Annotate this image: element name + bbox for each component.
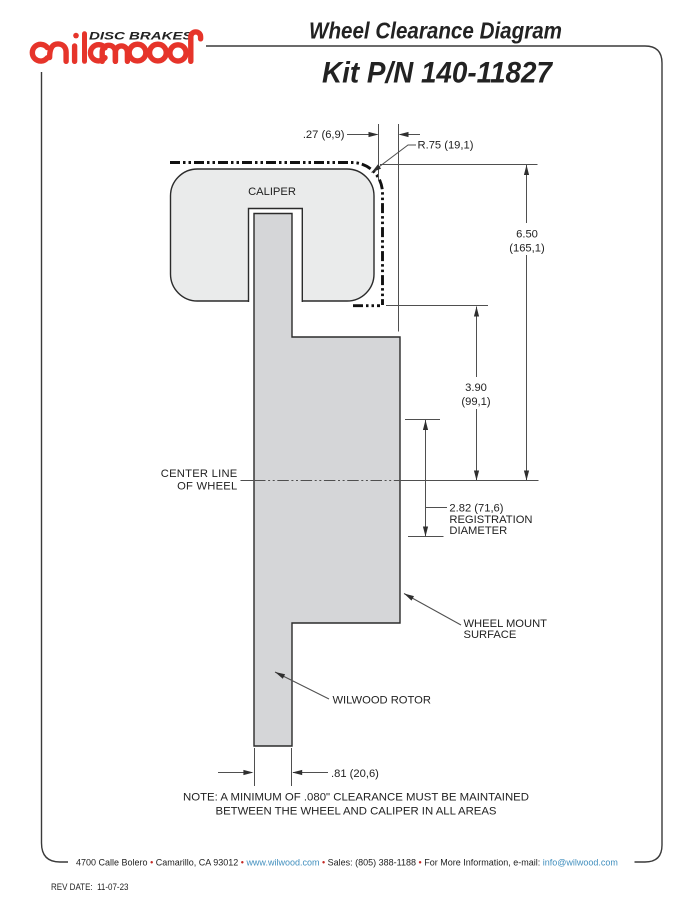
- svg-text:4700 Calle Bolero • Camarillo,: 4700 Calle Bolero • Camarillo, CA 93012 …: [76, 858, 618, 868]
- svg-text:WHEEL MOUNT: WHEEL MOUNT: [464, 618, 548, 630]
- svg-text:3.90: 3.90: [465, 382, 487, 394]
- svg-text:WILWOOD ROTOR: WILWOOD ROTOR: [333, 695, 431, 707]
- svg-text:DIAMETER: DIAMETER: [449, 525, 507, 537]
- svg-text:DISC BRAKES: DISC BRAKES: [89, 31, 193, 43]
- svg-text:.81 (20,6): .81 (20,6): [331, 768, 379, 780]
- svg-text:SURFACE: SURFACE: [464, 629, 517, 641]
- svg-text:REGISTRATION: REGISTRATION: [449, 514, 532, 526]
- svg-text:6.50: 6.50: [516, 229, 538, 241]
- svg-text:NOTE: A MINIMUM OF .080" CLEAR: NOTE: A MINIMUM OF .080" CLEARANCE MUST …: [183, 792, 529, 804]
- svg-text:CALIPER: CALIPER: [248, 186, 296, 198]
- svg-text:Kit P/N 140-11827: Kit P/N 140-11827: [322, 57, 553, 90]
- svg-text:.27 (6,9): .27 (6,9): [303, 129, 345, 141]
- svg-text:Wheel Clearance Diagram: Wheel Clearance Diagram: [309, 18, 562, 44]
- svg-text:OF WHEEL: OF WHEEL: [177, 481, 237, 493]
- svg-text:R.75 (19,1): R.75 (19,1): [418, 140, 474, 152]
- svg-text:2.82 (71,6): 2.82 (71,6): [449, 503, 503, 515]
- svg-text:REV DATE: 11-07-23: REV DATE: 11-07-23: [51, 882, 129, 892]
- svg-text:(99,1): (99,1): [461, 396, 490, 408]
- svg-text:(165,1): (165,1): [509, 243, 545, 255]
- svg-text:BETWEEN THE WHEEL AND CALIPER: BETWEEN THE WHEEL AND CALIPER IN ALL ARE…: [216, 806, 497, 818]
- svg-text:CENTER LINE: CENTER LINE: [161, 468, 238, 480]
